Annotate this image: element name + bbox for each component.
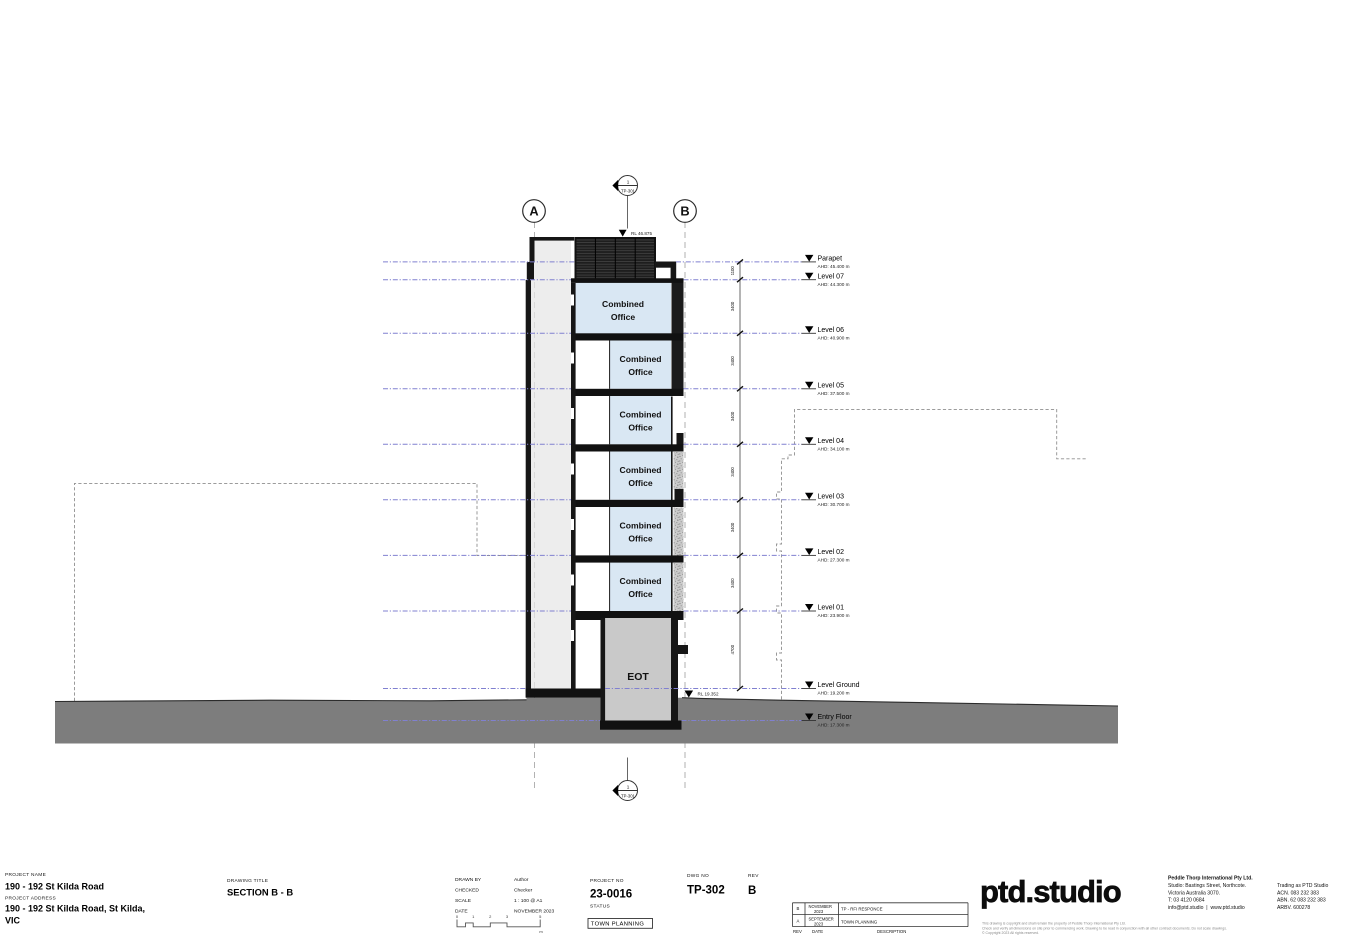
svg-text:Entry Floor: Entry Floor	[818, 714, 853, 721]
svg-text:Office: Office	[628, 423, 653, 433]
svg-text:Parapet: Parapet	[818, 256, 843, 263]
svg-text:AHD: 40.900 m: AHD: 40.900 m	[818, 335, 850, 340]
svg-text:This drawing is copyright and: This drawing is copyright and shall rema…	[982, 922, 1126, 926]
svg-text:Level 02: Level 02	[818, 549, 845, 556]
svg-text:Combined: Combined	[619, 576, 661, 586]
svg-text:4700: 4700	[730, 644, 735, 654]
svg-text:DWG NO: DWG NO	[687, 873, 709, 879]
svg-text:AHD: 23.900 m: AHD: 23.900 m	[818, 613, 850, 618]
svg-text:AHD: 17.300 m: AHD: 17.300 m	[818, 723, 850, 728]
svg-text:info@ptd.studio | www.ptd.st: info@ptd.studio | www.ptd.studio	[1168, 905, 1245, 911]
svg-text:TP-301: TP-301	[621, 188, 635, 193]
svg-text:AHD: 27.300 m: AHD: 27.300 m	[818, 558, 850, 563]
svg-text:NOVEMBER 2023: NOVEMBER 2023	[514, 909, 555, 915]
svg-text:1 : 100 @ A1: 1 : 100 @ A1	[514, 898, 543, 904]
svg-text:Level 04: Level 04	[818, 438, 845, 445]
svg-text:3400: 3400	[730, 411, 735, 421]
svg-text:T: 03 4120 0684: T: 03 4120 0684	[1168, 898, 1205, 904]
svg-text:1: 1	[627, 180, 630, 185]
svg-text:RL 19.352: RL 19.352	[698, 692, 719, 697]
svg-text:TP-301: TP-301	[621, 793, 635, 798]
svg-text:23-0016: 23-0016	[590, 889, 632, 901]
svg-text:Office: Office	[628, 589, 653, 599]
svg-text:3400: 3400	[730, 301, 735, 311]
svg-text:Level 03: Level 03	[818, 493, 845, 500]
svg-text:Office: Office	[628, 478, 653, 488]
svg-text:Victoria Australia 3070.: Victoria Australia 3070.	[1168, 890, 1220, 896]
svg-text:DRAWING TITLE: DRAWING TITLE	[227, 878, 268, 884]
svg-text:B: B	[748, 885, 756, 897]
svg-text:190 - 192 St Kilda Road, St Ki: 190 - 192 St Kilda Road, St Kilda,	[5, 904, 145, 914]
svg-text:TP - RFI RESPONCE: TP - RFI RESPONCE	[841, 907, 883, 912]
svg-text:CHECKED: CHECKED	[455, 888, 479, 894]
svg-text:3400: 3400	[730, 578, 735, 588]
svg-text:PROJECT NO: PROJECT NO	[590, 878, 624, 884]
svg-text:190 - 192 St Kilda Road: 190 - 192 St Kilda Road	[5, 882, 104, 892]
svg-text:Office: Office	[628, 367, 653, 377]
svg-text:AHD: 30.700 m: AHD: 30.700 m	[818, 502, 850, 507]
svg-text:DRAWN BY: DRAWN BY	[455, 877, 482, 883]
svg-text:Combined: Combined	[619, 465, 661, 475]
svg-text:3400: 3400	[730, 356, 735, 366]
svg-text:SECTION B - B: SECTION B - B	[227, 887, 293, 898]
svg-text:PROJECT ADDRESS: PROJECT ADDRESS	[5, 896, 56, 902]
svg-text:2023: 2023	[814, 921, 824, 926]
svg-text:Level 05: Level 05	[818, 382, 845, 389]
svg-text:B: B	[680, 204, 689, 219]
svg-text:Level 01: Level 01	[818, 605, 845, 612]
svg-text:Combined: Combined	[602, 299, 644, 309]
svg-text:REV: REV	[793, 929, 802, 934]
svg-text:SCALE: SCALE	[455, 898, 472, 904]
svg-text:AHD: 19.200 m: AHD: 19.200 m	[818, 691, 850, 696]
svg-text:Level 07: Level 07	[818, 273, 845, 280]
svg-text:TOWN PLANNING: TOWN PLANNING	[591, 922, 645, 928]
svg-text:Office: Office	[611, 312, 636, 322]
svg-text:AHD: 37.500 m: AHD: 37.500 m	[818, 391, 850, 396]
svg-text:A: A	[797, 919, 800, 924]
svg-text:REV: REV	[748, 873, 759, 879]
svg-text:Combined: Combined	[619, 521, 661, 531]
svg-text:DATE: DATE	[812, 929, 823, 934]
svg-text:1: 1	[627, 785, 630, 790]
svg-text:Combined: Combined	[619, 354, 661, 364]
svg-text:Trading as PTD Studio: Trading as PTD Studio	[1277, 883, 1329, 889]
svg-text:AHD: 34.100 m: AHD: 34.100 m	[818, 446, 850, 451]
svg-text:ARBV. 600278: ARBV. 600278	[1277, 905, 1310, 911]
svg-text:© Copyright 2023 All rights re: © Copyright 2023 All rights reserved.	[982, 931, 1039, 935]
svg-text:PROJECT NAME: PROJECT NAME	[5, 872, 46, 878]
svg-text:TP-302: TP-302	[687, 885, 725, 897]
svg-text:Office: Office	[628, 534, 653, 544]
svg-text:VIC: VIC	[5, 916, 21, 926]
svg-text:B: B	[797, 906, 800, 911]
svg-text:3400: 3400	[730, 467, 735, 477]
svg-text:Combined: Combined	[619, 410, 661, 420]
svg-text:Author: Author	[514, 877, 529, 883]
svg-text:Checker: Checker	[514, 888, 533, 894]
svg-text:TOWN PLANNING: TOWN PLANNING	[841, 920, 878, 925]
svg-text:RL 46.875: RL 46.875	[631, 231, 652, 236]
svg-text:AHD: 44.300 m: AHD: 44.300 m	[818, 282, 850, 287]
svg-text:Peddle Thorp International Pty: Peddle Thorp International Pty Ltd.	[1168, 876, 1253, 882]
svg-text:Level 06: Level 06	[818, 327, 845, 334]
svg-text:ptd.studio: ptd.studio	[980, 874, 1121, 909]
svg-text:EOT: EOT	[627, 671, 649, 683]
svg-text:3400: 3400	[730, 522, 735, 532]
svg-text:A: A	[529, 204, 538, 219]
svg-text:2023: 2023	[814, 909, 824, 914]
svg-text:1100: 1100	[730, 266, 735, 276]
svg-text:Level Ground: Level Ground	[818, 682, 860, 689]
svg-text:DESCRIPTION: DESCRIPTION	[877, 929, 906, 934]
svg-text:Studio: Bastings Street, North: Studio: Bastings Street, Northcote.	[1168, 883, 1246, 889]
svg-text:ABN. 62 083 232 383: ABN. 62 083 232 383	[1277, 898, 1326, 904]
svg-text:AHD: 45.400 m: AHD: 45.400 m	[818, 264, 850, 269]
svg-text:Check and verify all dimension: Check and verify all dimensions on site …	[982, 927, 1227, 931]
svg-text:ACN. 083 232 383: ACN. 083 232 383	[1277, 890, 1319, 896]
svg-text:STATUS: STATUS	[590, 904, 610, 910]
